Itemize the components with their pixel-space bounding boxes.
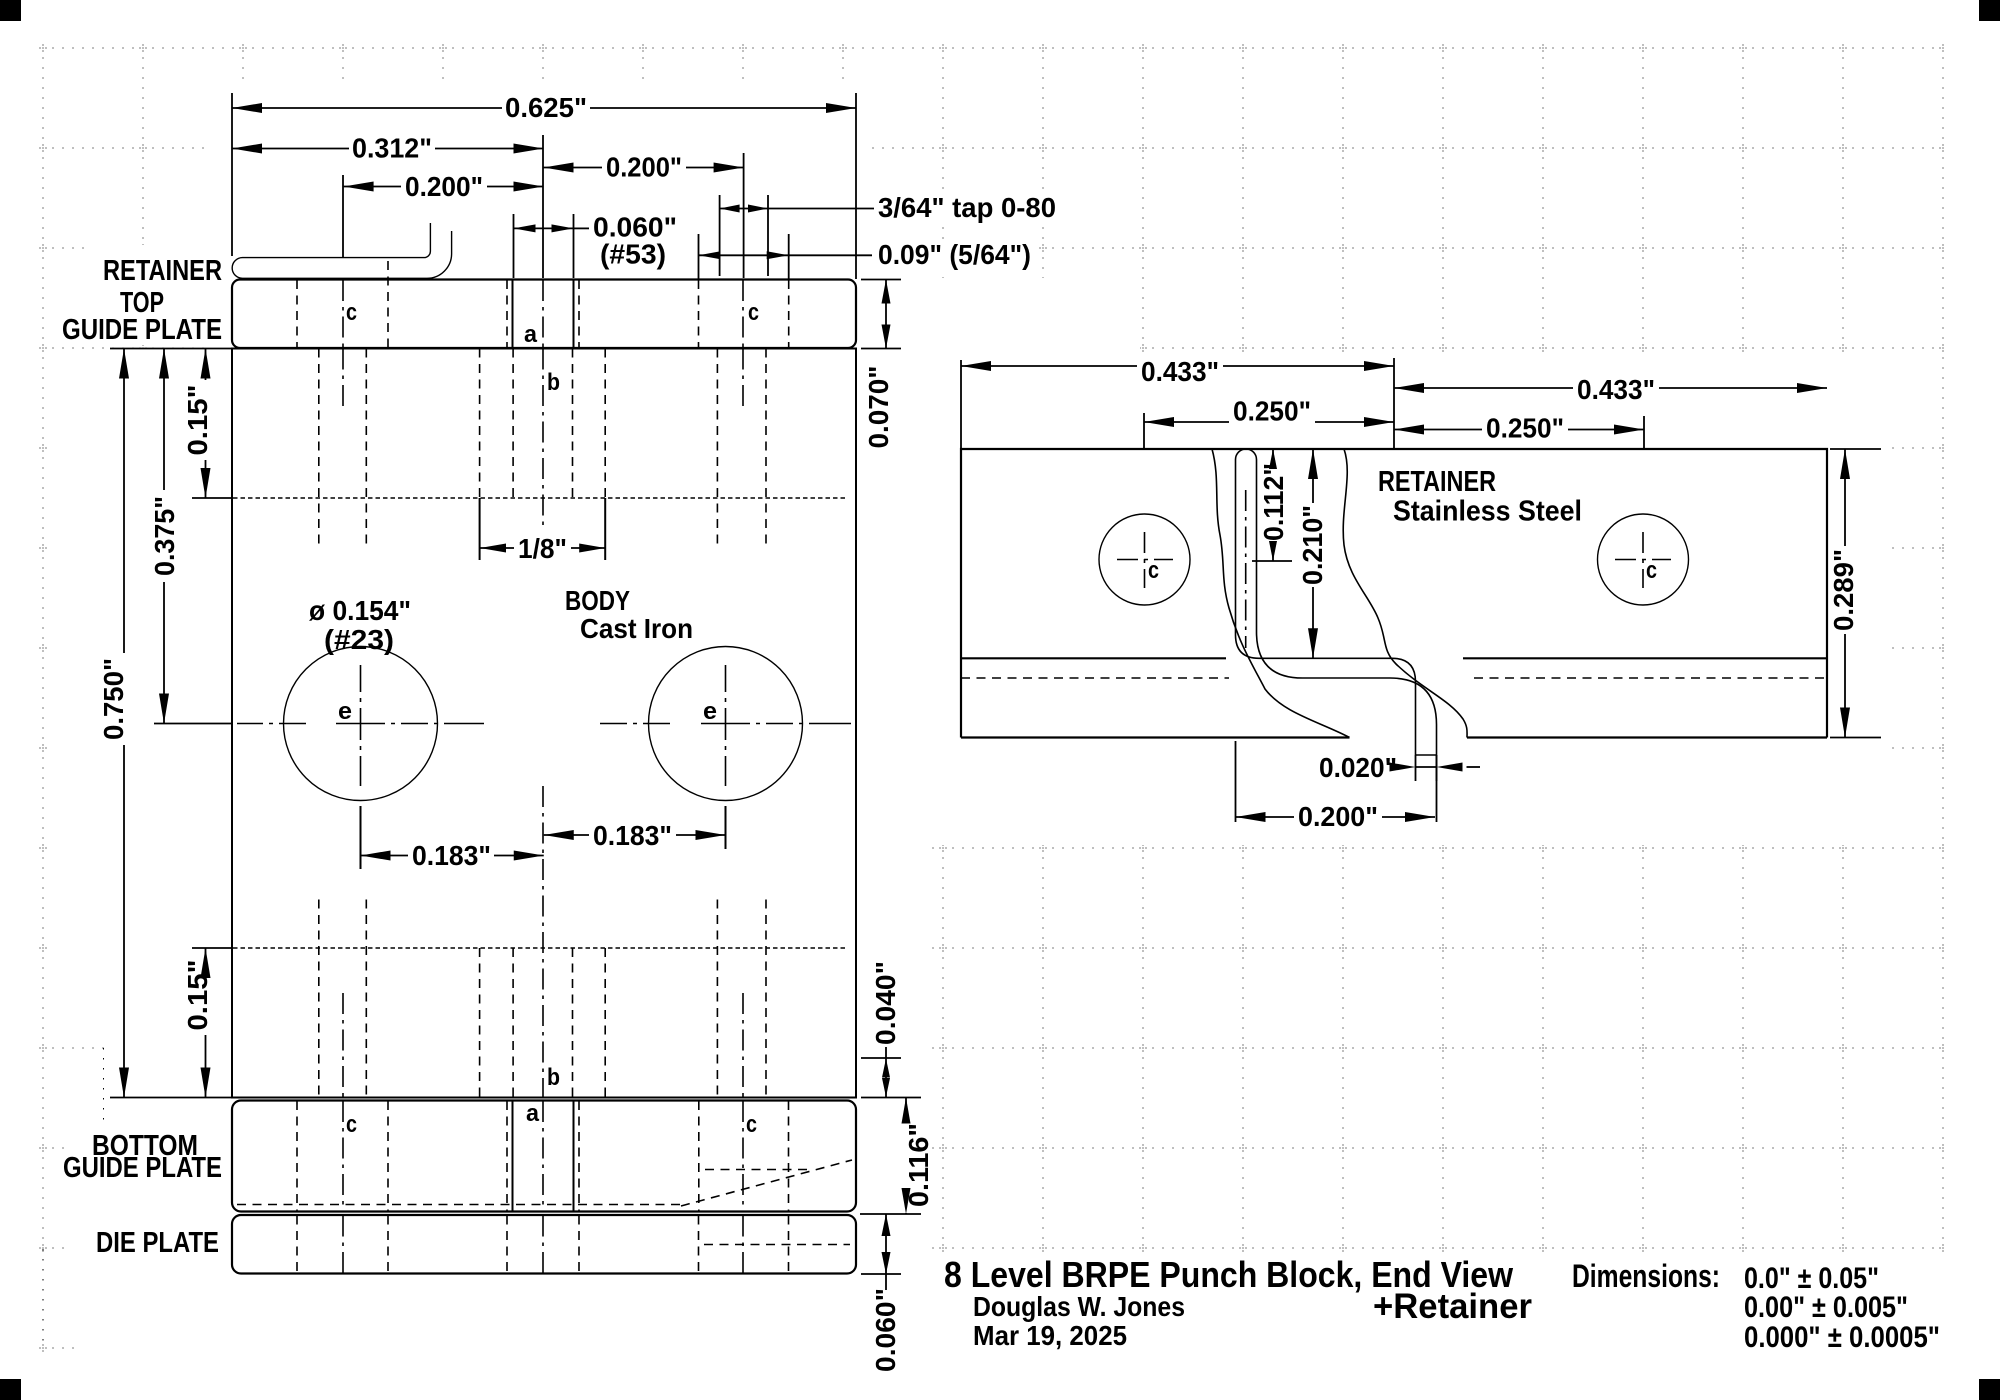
svg-text:c: c [748, 299, 759, 326]
svg-text:Mar 19, 2025: Mar 19, 2025 [973, 1320, 1127, 1351]
svg-text:c: c [346, 1111, 357, 1138]
svg-text:0.15": 0.15" [182, 385, 213, 456]
svg-text:0.625": 0.625" [505, 92, 587, 123]
svg-text:0.183": 0.183" [412, 840, 491, 871]
svg-text:0.00" ± 0.005": 0.00" ± 0.005" [1744, 1291, 1908, 1324]
svg-text:0.040": 0.040" [870, 961, 901, 1045]
svg-text:0.433": 0.433" [1577, 374, 1655, 405]
svg-text:b: b [547, 369, 560, 396]
svg-text:0.250": 0.250" [1486, 413, 1564, 444]
svg-text:a: a [524, 321, 538, 348]
svg-text:0.289": 0.289" [1828, 549, 1859, 631]
svg-text:0.200": 0.200" [405, 171, 483, 202]
svg-text:RETAINER: RETAINER [1378, 466, 1496, 498]
svg-text:0.200": 0.200" [1298, 801, 1378, 832]
svg-text:ø 0.154": ø 0.154" [309, 595, 411, 626]
svg-text:Dimensions:: Dimensions: [1572, 1258, 1720, 1294]
svg-text:GUIDE PLATE: GUIDE PLATE [63, 1152, 222, 1184]
svg-text:RETAINER: RETAINER [103, 255, 222, 287]
svg-text:0.020": 0.020" [1319, 752, 1397, 783]
svg-text:0.183": 0.183" [593, 820, 672, 851]
svg-text:Douglas W. Jones: Douglas W. Jones [973, 1291, 1185, 1322]
svg-text:0.250": 0.250" [1233, 396, 1311, 427]
svg-text:c: c [1646, 557, 1657, 584]
svg-text:0.112": 0.112" [1258, 463, 1289, 541]
svg-text:Stainless Steel: Stainless Steel [1393, 496, 1582, 528]
svg-text:Cast Iron: Cast Iron [580, 613, 693, 644]
svg-text:(#23): (#23) [324, 624, 394, 655]
svg-text:e: e [338, 698, 352, 725]
svg-text:e: e [703, 698, 717, 725]
svg-text:0.070": 0.070" [863, 366, 894, 449]
svg-text:0.375": 0.375" [149, 496, 180, 576]
svg-text:0.312": 0.312" [352, 133, 432, 164]
svg-text:0.116": 0.116" [903, 1123, 934, 1207]
svg-text:c: c [346, 299, 357, 326]
svg-text:0.210": 0.210" [1297, 505, 1328, 585]
svg-text:c: c [1148, 557, 1159, 584]
svg-text:c: c [746, 1111, 757, 1138]
svg-text:+Retainer: +Retainer [1373, 1287, 1532, 1326]
svg-text:0.060": 0.060" [870, 1288, 901, 1372]
svg-text:0.09" (5/64"): 0.09" (5/64") [878, 239, 1031, 270]
svg-text:0.750": 0.750" [98, 658, 129, 740]
svg-text:3/64" tap 0-80: 3/64" tap 0-80 [878, 192, 1056, 223]
svg-text:GUIDE PLATE: GUIDE PLATE [62, 314, 222, 346]
svg-text:0.000" ± 0.0005": 0.000" ± 0.0005" [1744, 1321, 1940, 1354]
svg-text:BODY: BODY [565, 585, 630, 616]
svg-text:DIE PLATE: DIE PLATE [96, 1227, 219, 1259]
svg-text:0.433": 0.433" [1141, 356, 1219, 387]
svg-text:(#53): (#53) [600, 239, 666, 270]
svg-text:0.200": 0.200" [606, 152, 682, 183]
svg-text:a: a [526, 1100, 540, 1127]
svg-text:1/8": 1/8" [518, 533, 567, 564]
svg-text:0.15": 0.15" [182, 960, 213, 1031]
svg-text:b: b [547, 1064, 560, 1091]
